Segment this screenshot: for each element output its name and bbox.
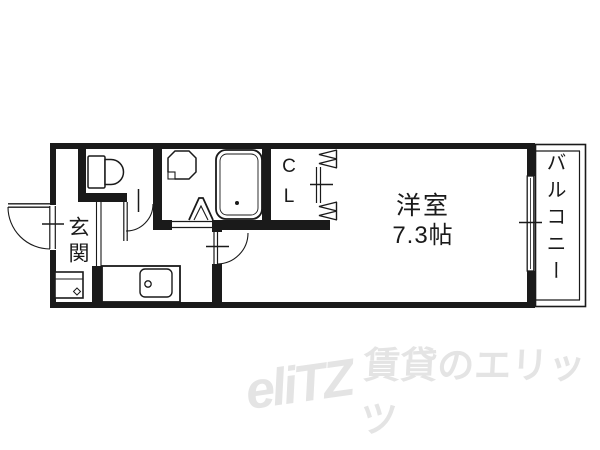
toilet-door-icon [124,189,153,241]
closet-label: C L [276,152,302,212]
room-door-icon [206,232,248,264]
bathtub-icon [216,150,262,219]
washing-machine-space-icon [55,272,83,298]
balcony-window-icon [519,176,542,271]
floor-plan-canvas: 洋室 7.3帖 C L 玄関 バルコニー eliTZ 賃貸のエリッツ [0,0,600,450]
kitchen-counter-icon [102,266,180,302]
closet-accordion-door-icon [310,150,337,220]
folding-door-icon [168,198,218,228]
wash-basin-icon [168,151,196,179]
front-door-icon [8,204,64,249]
western-room-name: 洋室 [368,192,478,221]
entrance-step-line [97,202,102,266]
western-room-size: 7.3帖 [368,221,478,250]
toilet-icon [88,156,124,188]
western-room-label: 洋室 7.3帖 [368,192,478,250]
balcony-label: バルコニー [540,152,569,287]
entrance-label: 玄関 [62,216,92,268]
